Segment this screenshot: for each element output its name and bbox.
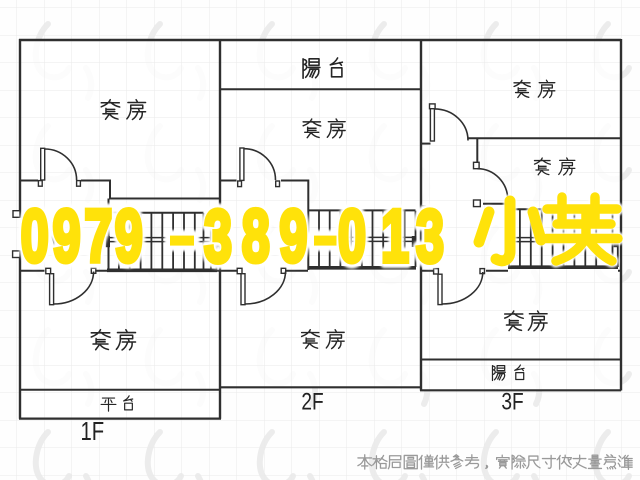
svg-text:3F: 3F [501,387,523,415]
svg-text:1F: 1F [80,417,104,446]
svg-text:2F: 2F [301,387,323,415]
